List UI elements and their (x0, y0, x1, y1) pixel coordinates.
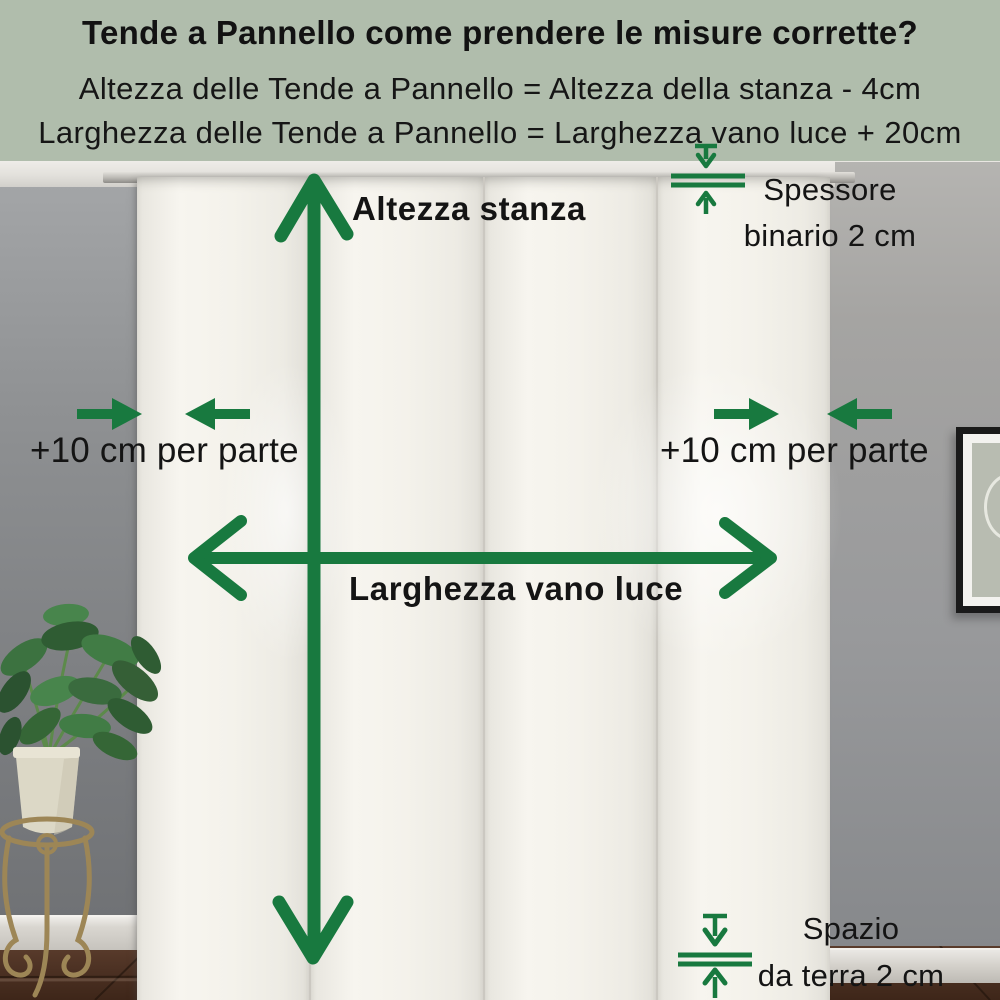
art-circle-motif (984, 473, 1000, 541)
rail-thickness-label: Spessore binario 2 cm (712, 167, 948, 259)
page-title: Tende a Pannello come prendere le misure… (0, 14, 1000, 52)
plant-leaves (0, 602, 167, 766)
measurement-infographic: Tende a Pannello come prendere le misure… (0, 0, 1000, 1000)
formula-width: Larghezza delle Tende a Pannello = Largh… (0, 115, 1000, 151)
plant-stand (2, 819, 92, 995)
room-height-label: Altezza stanza (352, 190, 586, 228)
right-extension-label: +10 cm per parte (660, 431, 929, 471)
floor-gap-line1: Spazio (734, 905, 968, 952)
window-light (592, 362, 842, 662)
window-light (222, 362, 352, 662)
potted-plant (0, 595, 206, 1000)
opening-width-label: Larghezza vano luce (349, 570, 683, 608)
formula-height: Altezza delle Tende a Pannello = Altezza… (0, 71, 1000, 107)
framed-art (972, 443, 1000, 597)
rail-thickness-line2: binario 2 cm (712, 213, 948, 259)
floor-gap-line2: da terra 2 cm (734, 952, 968, 999)
floor-gap-label: Spazio da terra 2 cm (734, 905, 968, 999)
header: Tende a Pannello come prendere le misure… (0, 0, 1000, 161)
picture-frame (956, 427, 1000, 613)
rail-thickness-line1: Spessore (712, 167, 948, 213)
left-extension-label: +10 cm per parte (30, 431, 299, 471)
